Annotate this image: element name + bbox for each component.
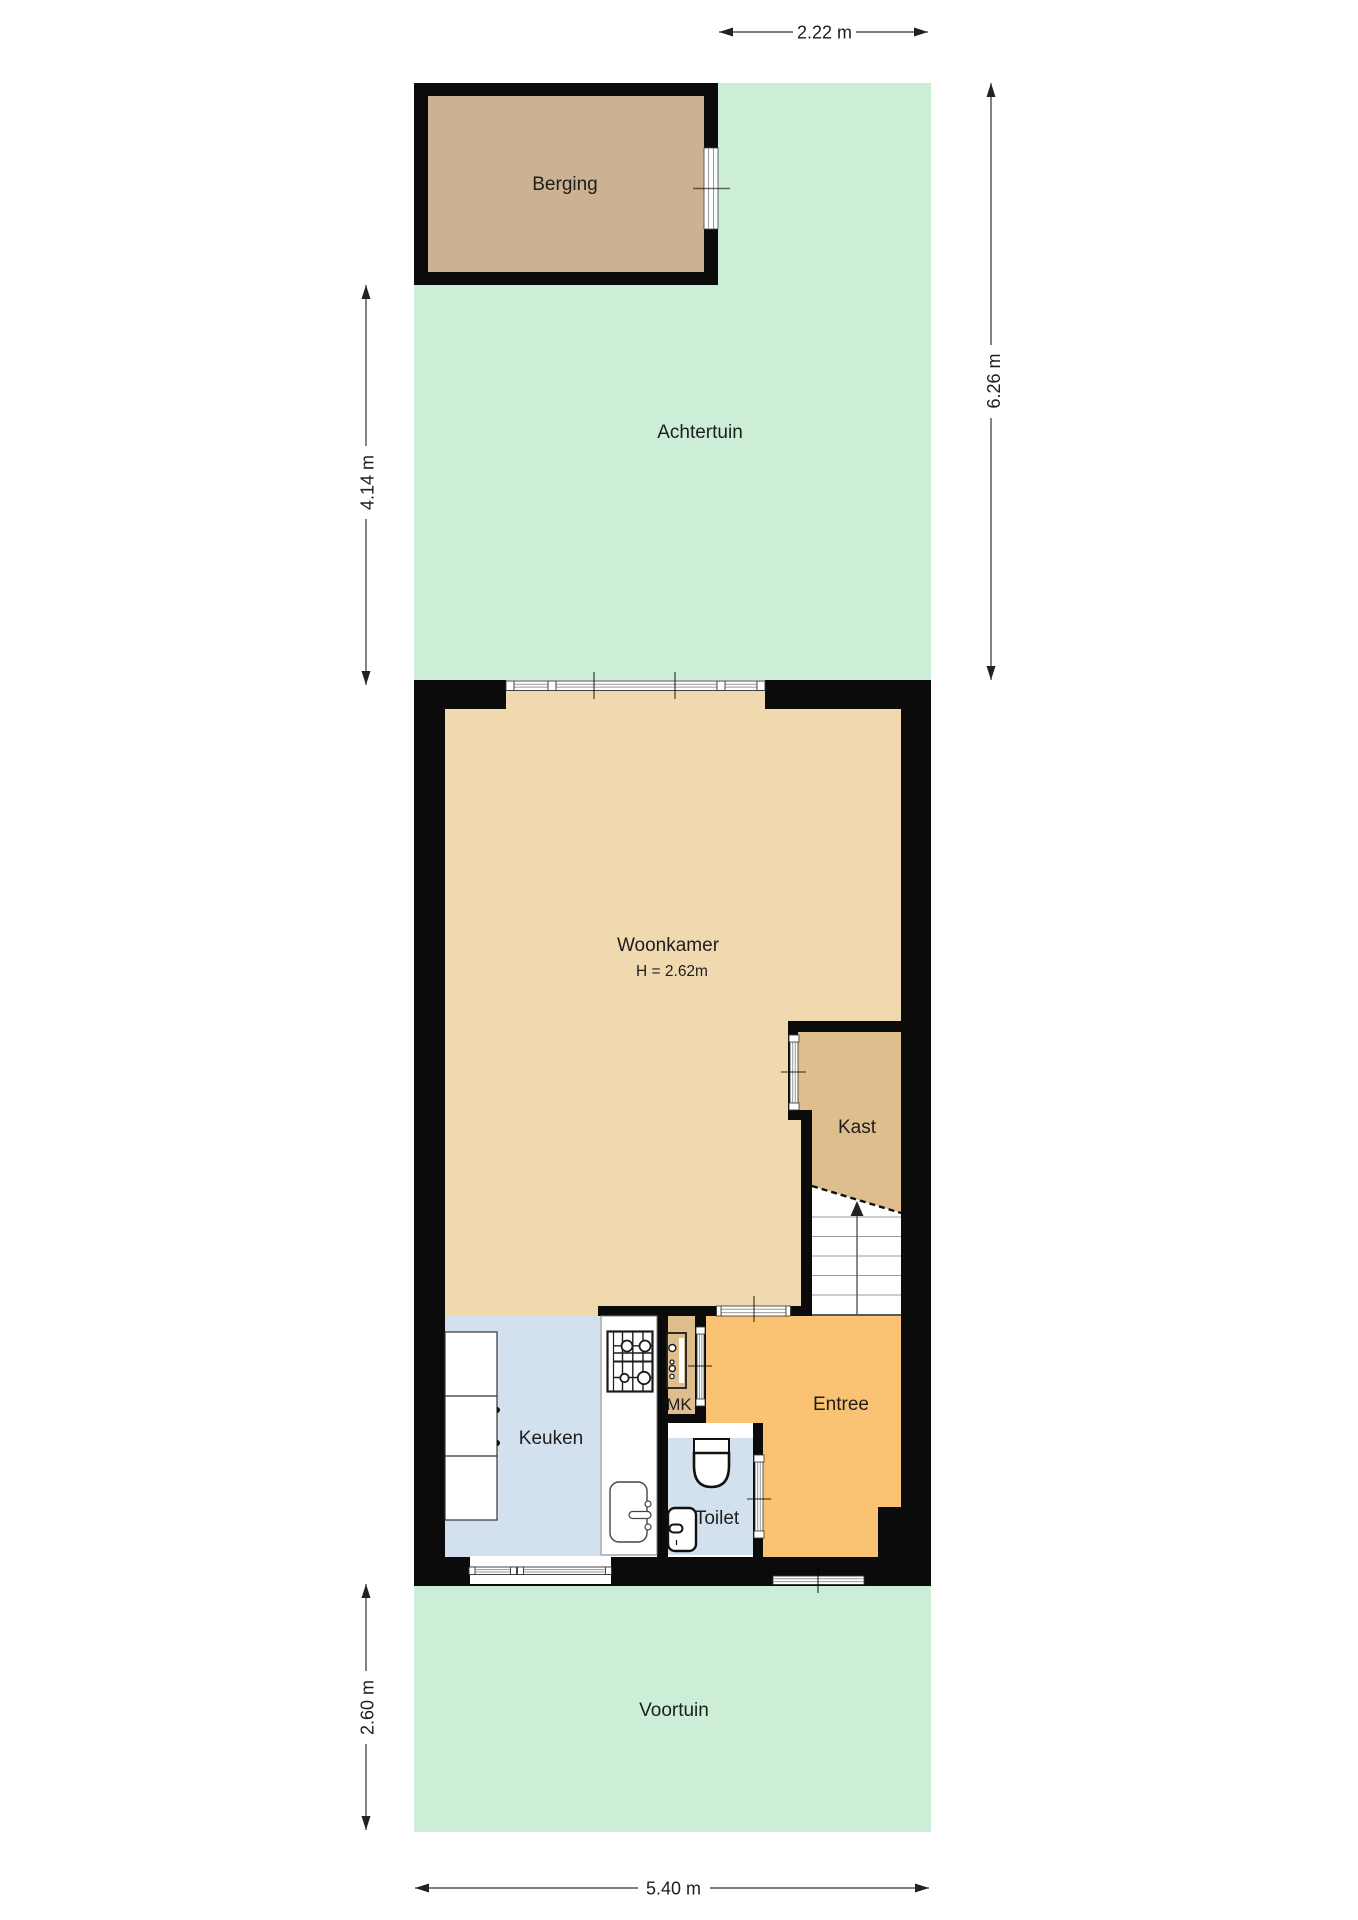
svg-text:5.40 m: 5.40 m xyxy=(646,1879,701,1899)
svg-text:Entree: Entree xyxy=(813,1394,869,1415)
svg-text:Woonkamer: Woonkamer xyxy=(617,935,720,956)
svg-text:H = 2.62m: H = 2.62m xyxy=(636,963,708,980)
svg-text:Berging: Berging xyxy=(532,174,598,195)
svg-text:Kast: Kast xyxy=(838,1117,877,1138)
svg-text:MK: MK xyxy=(666,1395,692,1414)
svg-text:Keuken: Keuken xyxy=(519,1428,583,1449)
svg-text:Achtertuin: Achtertuin xyxy=(657,422,743,443)
svg-text:2.22 m: 2.22 m xyxy=(797,23,852,43)
svg-text:2.60 m: 2.60 m xyxy=(358,1680,378,1735)
svg-text:Voortuin: Voortuin xyxy=(639,1700,709,1721)
svg-text:4.14 m: 4.14 m xyxy=(358,455,378,510)
svg-text:Toilet: Toilet xyxy=(695,1508,740,1529)
svg-text:6.26 m: 6.26 m xyxy=(984,353,1004,408)
